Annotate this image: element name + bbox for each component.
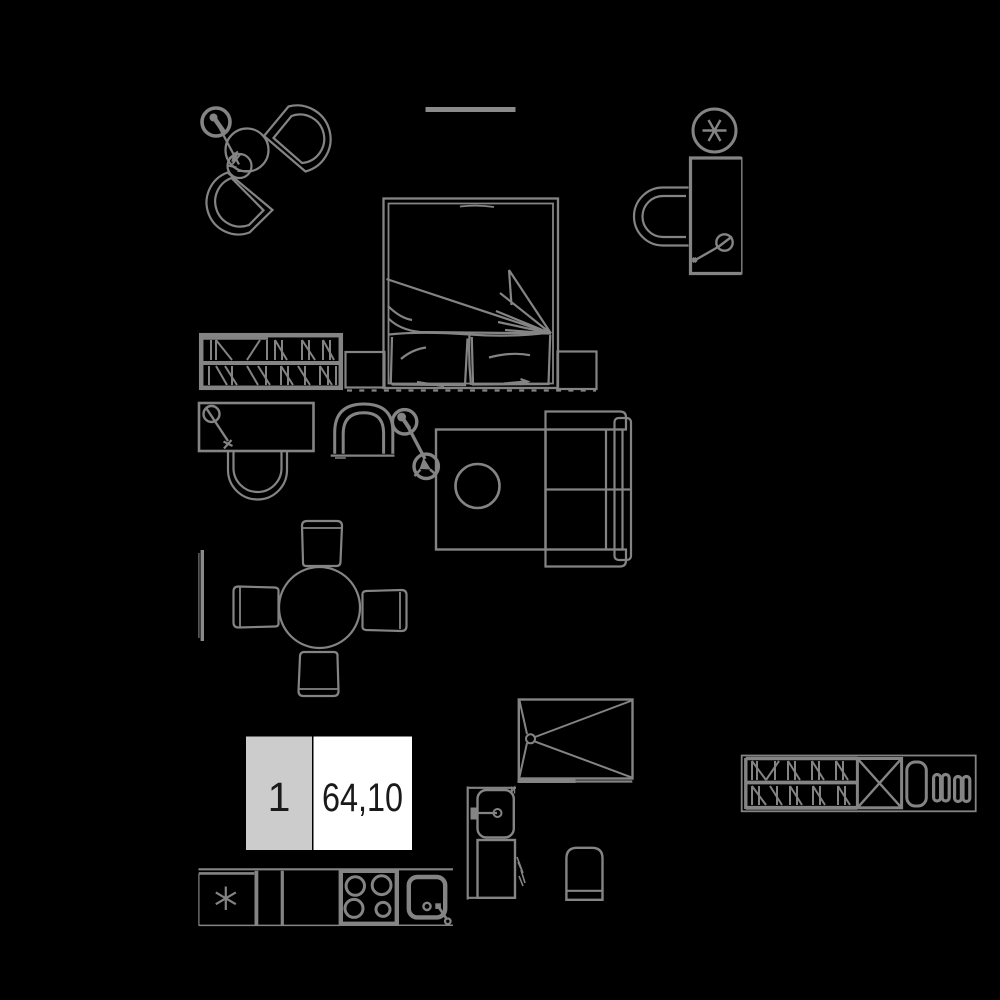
svg-text:64,10: 64,10 xyxy=(322,776,403,820)
svg-text:1: 1 xyxy=(268,774,291,820)
